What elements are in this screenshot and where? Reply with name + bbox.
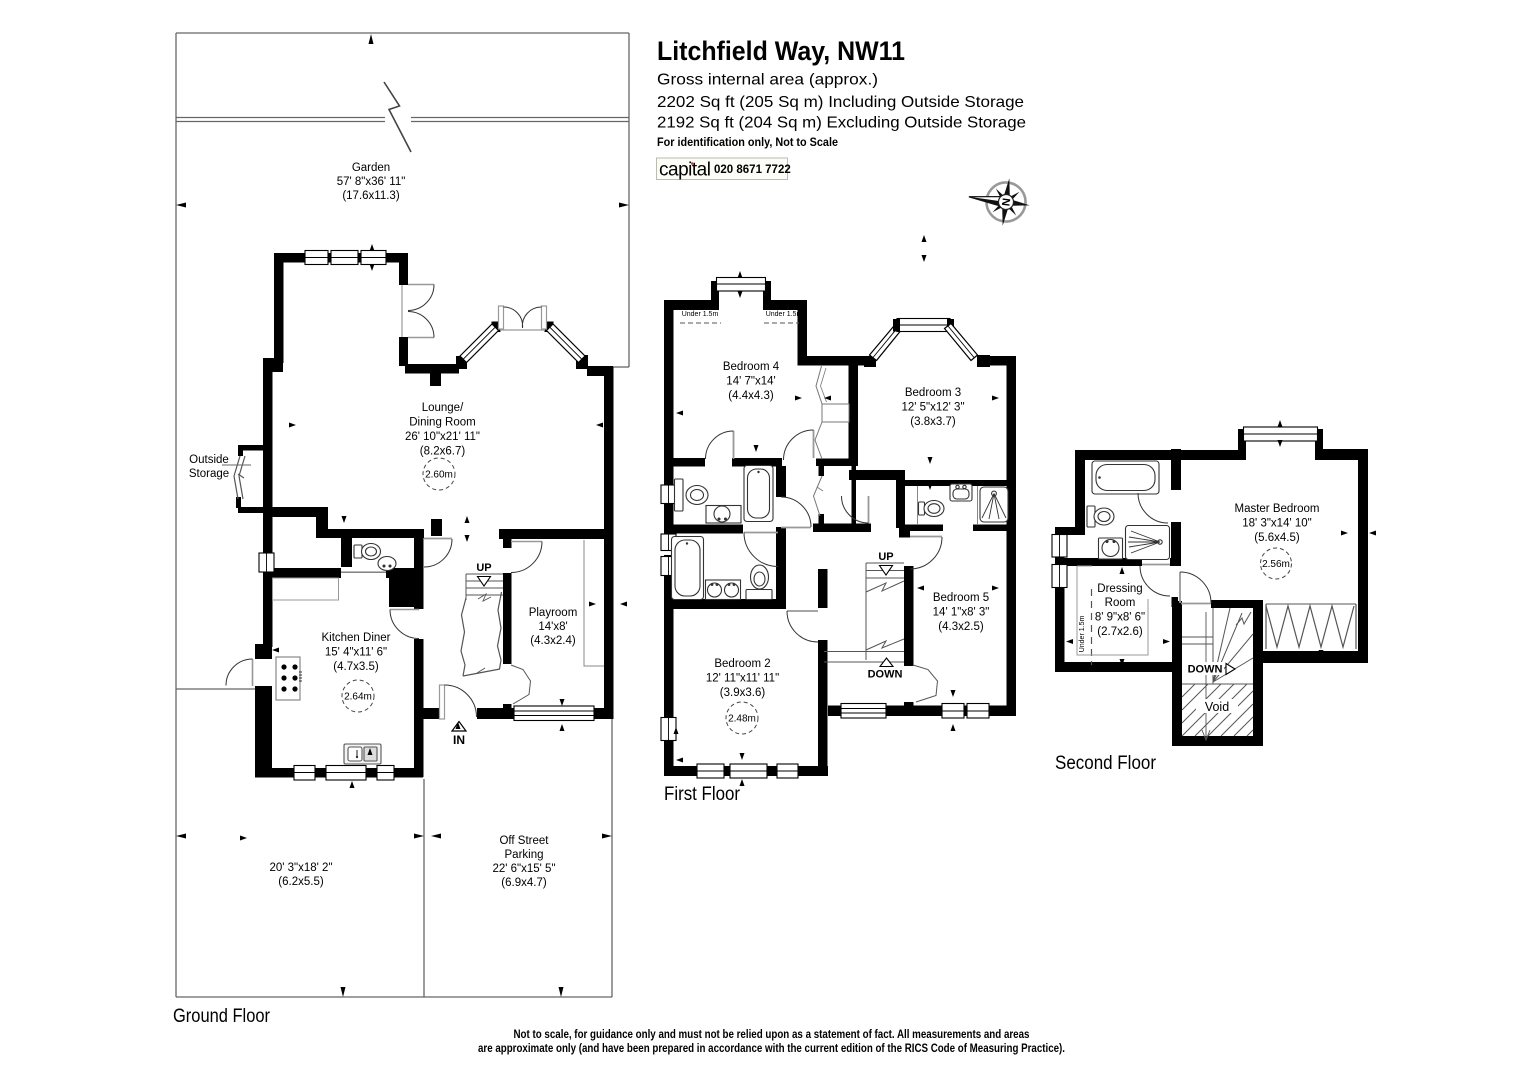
svg-text:DOWN: DOWN [868,669,903,681]
svg-text:(2.7x2.6): (2.7x2.6) [1097,626,1143,638]
svg-text:14'x8': 14'x8' [538,621,567,633]
svg-text:are approximate only (and have: are approximate only (and have been prep… [478,1043,1065,1055]
svg-text:capital: capital [659,160,710,181]
svg-text:15' 4"x11' 6": 15' 4"x11' 6" [325,647,387,659]
svg-text:Bedroom 5: Bedroom 5 [933,592,989,604]
svg-text:(6.9x4.7): (6.9x4.7) [501,877,547,889]
svg-text:Litchfield Way, NW11: Litchfield Way, NW11 [657,36,905,66]
svg-text:2192 Sq ft (204 Sq m) Excludin: 2192 Sq ft (204 Sq m) Excluding Outside … [657,115,1026,132]
svg-text:Gross internal area (approx.): Gross internal area (approx.) [657,72,878,89]
svg-text:(3.9x3.6): (3.9x3.6) [720,687,766,699]
svg-text:57' 8"x36' 11": 57' 8"x36' 11" [337,176,406,188]
svg-text:Under 1.5m: Under 1.5m [766,311,803,318]
svg-text:Kitchen Diner: Kitchen Diner [321,632,390,644]
svg-text:(3.8x3.7): (3.8x3.7) [910,416,956,428]
svg-text:DOWN: DOWN [1188,664,1223,676]
svg-text:12' 5"x12' 3": 12' 5"x12' 3" [901,402,964,414]
svg-text:Not to scale, for guidance onl: Not to scale, for guidance only and must… [514,1029,1030,1041]
svg-text:Dressing: Dressing [1097,583,1142,595]
svg-text:Under 1.5m: Under 1.5m [1079,616,1086,653]
svg-text:22' 6"x15' 5": 22' 6"x15' 5" [492,863,555,875]
svg-text:Playroom: Playroom [529,607,578,619]
svg-text:For identification only, Not t: For identification only, Not to Scale [657,135,838,149]
svg-text:Storage: Storage [189,468,229,480]
svg-text:14' 7"x14': 14' 7"x14' [726,376,775,388]
svg-text:(4.4x4.3): (4.4x4.3) [728,390,774,402]
svg-text:2.48m: 2.48m [728,714,756,725]
svg-text:2.60m: 2.60m [425,470,453,481]
svg-text:2.56m: 2.56m [1262,559,1290,570]
svg-text:Master Bedroom: Master Bedroom [1234,503,1319,515]
svg-text:Under 1.5m: Under 1.5m [682,311,719,318]
svg-text:(4.7x3.5): (4.7x3.5) [333,661,379,673]
svg-text:20' 3"x18' 2": 20' 3"x18' 2" [269,862,332,874]
svg-text:2202 Sq ft (205 Sq m) Includin: 2202 Sq ft (205 Sq m) Including Outside … [657,94,1024,111]
svg-text:(5.6x4.5): (5.6x4.5) [1254,532,1300,544]
svg-text:Bedroom 3: Bedroom 3 [905,387,961,399]
svg-text:Parking: Parking [505,849,544,861]
svg-text:(17.6x11.3): (17.6x11.3) [342,190,399,202]
svg-text:Dining Room: Dining Room [409,417,475,429]
svg-text:UP: UP [476,562,491,574]
svg-text:Bedroom 2: Bedroom 2 [714,658,770,670]
svg-text:N: N [1000,197,1013,207]
svg-text:14' 1"x8' 3": 14' 1"x8' 3" [933,607,990,619]
svg-text:Lounge/: Lounge/ [422,402,464,414]
svg-text:020 8671 7722: 020 8671 7722 [714,164,791,176]
svg-text:Outside: Outside [189,454,229,466]
svg-text:(6.2x5.5): (6.2x5.5) [278,876,324,888]
svg-text:18' 3"x14' 10": 18' 3"x14' 10" [1242,518,1311,530]
svg-text:2.64m: 2.64m [344,692,372,703]
svg-text:(4.3x2.5): (4.3x2.5) [938,621,984,633]
svg-text:26' 10"x21' 11": 26' 10"x21' 11" [405,431,480,443]
svg-text:Garden: Garden [352,162,390,174]
svg-text:UP: UP [878,551,893,563]
svg-text:Bedroom 4: Bedroom 4 [723,361,780,373]
svg-text:Ground Floor: Ground Floor [173,1005,270,1027]
svg-text:First Floor: First Floor [664,783,740,805]
svg-text:Second Floor: Second Floor [1055,752,1156,774]
svg-text:8' 9"x8' 6": 8' 9"x8' 6" [1095,612,1145,624]
svg-text:Void: Void [1205,700,1229,714]
svg-text:(8.2x6.7): (8.2x6.7) [420,446,466,458]
svg-text:IN: IN [453,733,465,747]
svg-text:(4.3x2.4): (4.3x2.4) [530,635,576,647]
svg-text:12' 11"x11' 11": 12' 11"x11' 11" [706,673,779,685]
svg-text:Room: Room [1105,597,1136,609]
svg-text:Off Street: Off Street [499,835,549,847]
